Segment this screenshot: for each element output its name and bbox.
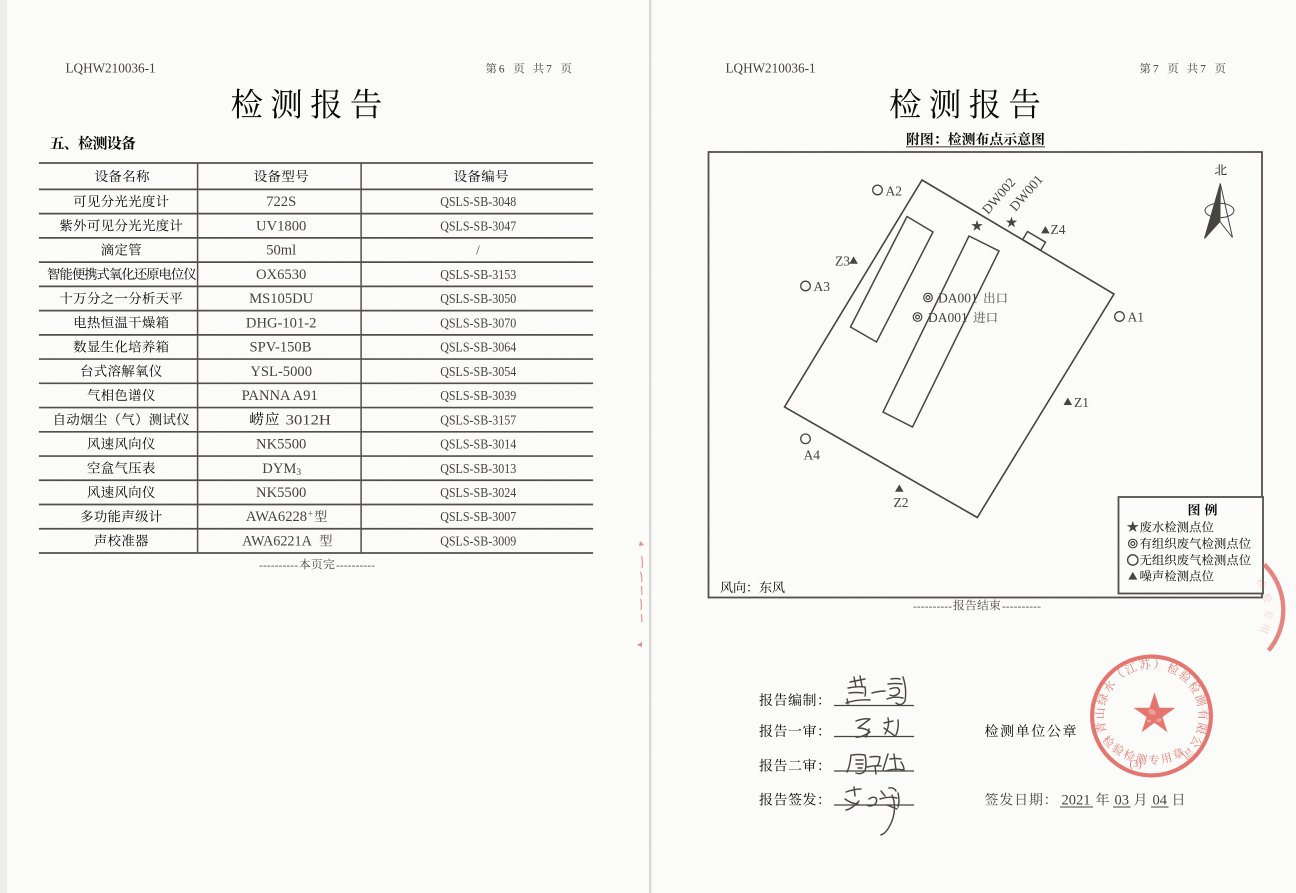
svg-text:Z4: Z4 [1051, 222, 1066, 237]
svg-text:NK5500: NK5500 [256, 437, 306, 453]
svg-text:QSLS-SB-3014: QSLS-SB-3014 [440, 437, 516, 452]
svg-text:QSLS-SB-3009: QSLS-SB-3009 [440, 533, 516, 548]
svg-text:03: 03 [1115, 793, 1130, 809]
svg-text:6: 6 [499, 64, 505, 76]
svg-text:OX6530: OX6530 [256, 267, 306, 283]
svg-text:QSLS-SB-3050: QSLS-SB-3050 [440, 291, 516, 306]
svg-text:DA001: DA001 [938, 291, 978, 306]
svg-text:A2: A2 [886, 184, 903, 199]
svg-text:(3): (3) [1130, 759, 1143, 770]
svg-text:7: 7 [546, 64, 552, 76]
svg-text:50ml: 50ml [266, 243, 296, 259]
svg-text:A4: A4 [804, 448, 821, 463]
svg-text:Z1: Z1 [1074, 395, 1089, 410]
svg-text:QSLS-SB-3048: QSLS-SB-3048 [440, 194, 516, 209]
svg-text:QSLS-SB-3153: QSLS-SB-3153 [440, 267, 516, 282]
svg-text:3: 3 [296, 468, 301, 478]
svg-text:LQHW210036-1: LQHW210036-1 [726, 61, 816, 76]
svg-text:----------: ---------- [336, 560, 375, 572]
svg-text:UV1800: UV1800 [256, 218, 306, 234]
svg-text:QSLS-SB-3157: QSLS-SB-3157 [440, 412, 516, 427]
svg-text:7: 7 [1153, 64, 1159, 76]
svg-text:04: 04 [1153, 793, 1168, 809]
svg-text:QSLS-SB-3070: QSLS-SB-3070 [440, 315, 516, 330]
svg-text:PANNA A91: PANNA A91 [242, 388, 318, 404]
svg-text:+: + [308, 509, 313, 519]
svg-text:----------: ---------- [1002, 601, 1041, 613]
svg-text:Z3: Z3 [835, 254, 850, 269]
svg-text:DYM: DYM [262, 461, 296, 477]
svg-text:QSLS-SB-3024: QSLS-SB-3024 [440, 485, 516, 500]
svg-text:AWA6221A: AWA6221A [242, 533, 313, 549]
svg-text:/: / [476, 243, 480, 258]
svg-text:3012H: 3012H [286, 412, 331, 428]
svg-text:QSLS-SB-3054: QSLS-SB-3054 [440, 364, 516, 379]
svg-text:QSLS-SB-3047: QSLS-SB-3047 [440, 218, 516, 233]
svg-text:YSL-5000: YSL-5000 [250, 364, 312, 380]
svg-text:NK5500: NK5500 [256, 485, 306, 501]
svg-text:A3: A3 [814, 279, 831, 294]
svg-text:LQHW210036-1: LQHW210036-1 [66, 61, 156, 76]
svg-text:DHG-101-2: DHG-101-2 [246, 315, 317, 331]
svg-text:722S: 722S [266, 194, 296, 210]
svg-text:2021: 2021 [1062, 793, 1091, 809]
svg-text:SPV-150B: SPV-150B [250, 340, 312, 356]
svg-text:MS105DU: MS105DU [249, 291, 314, 307]
svg-text:----------: ---------- [259, 560, 298, 572]
svg-text:7: 7 [1200, 64, 1206, 76]
svg-text:AWA6228: AWA6228 [246, 509, 307, 525]
svg-text:QSLS-SB-3064: QSLS-SB-3064 [440, 340, 516, 355]
svg-text:Z2: Z2 [894, 495, 909, 510]
svg-text:QSLS-SB-3039: QSLS-SB-3039 [440, 388, 516, 403]
svg-text:QSLS-SB-3013: QSLS-SB-3013 [440, 461, 516, 476]
svg-text:A1: A1 [1128, 310, 1145, 325]
svg-text:QSLS-SB-3007: QSLS-SB-3007 [440, 509, 516, 524]
svg-text:DA001: DA001 [928, 310, 968, 325]
svg-text:----------: ---------- [913, 601, 952, 613]
